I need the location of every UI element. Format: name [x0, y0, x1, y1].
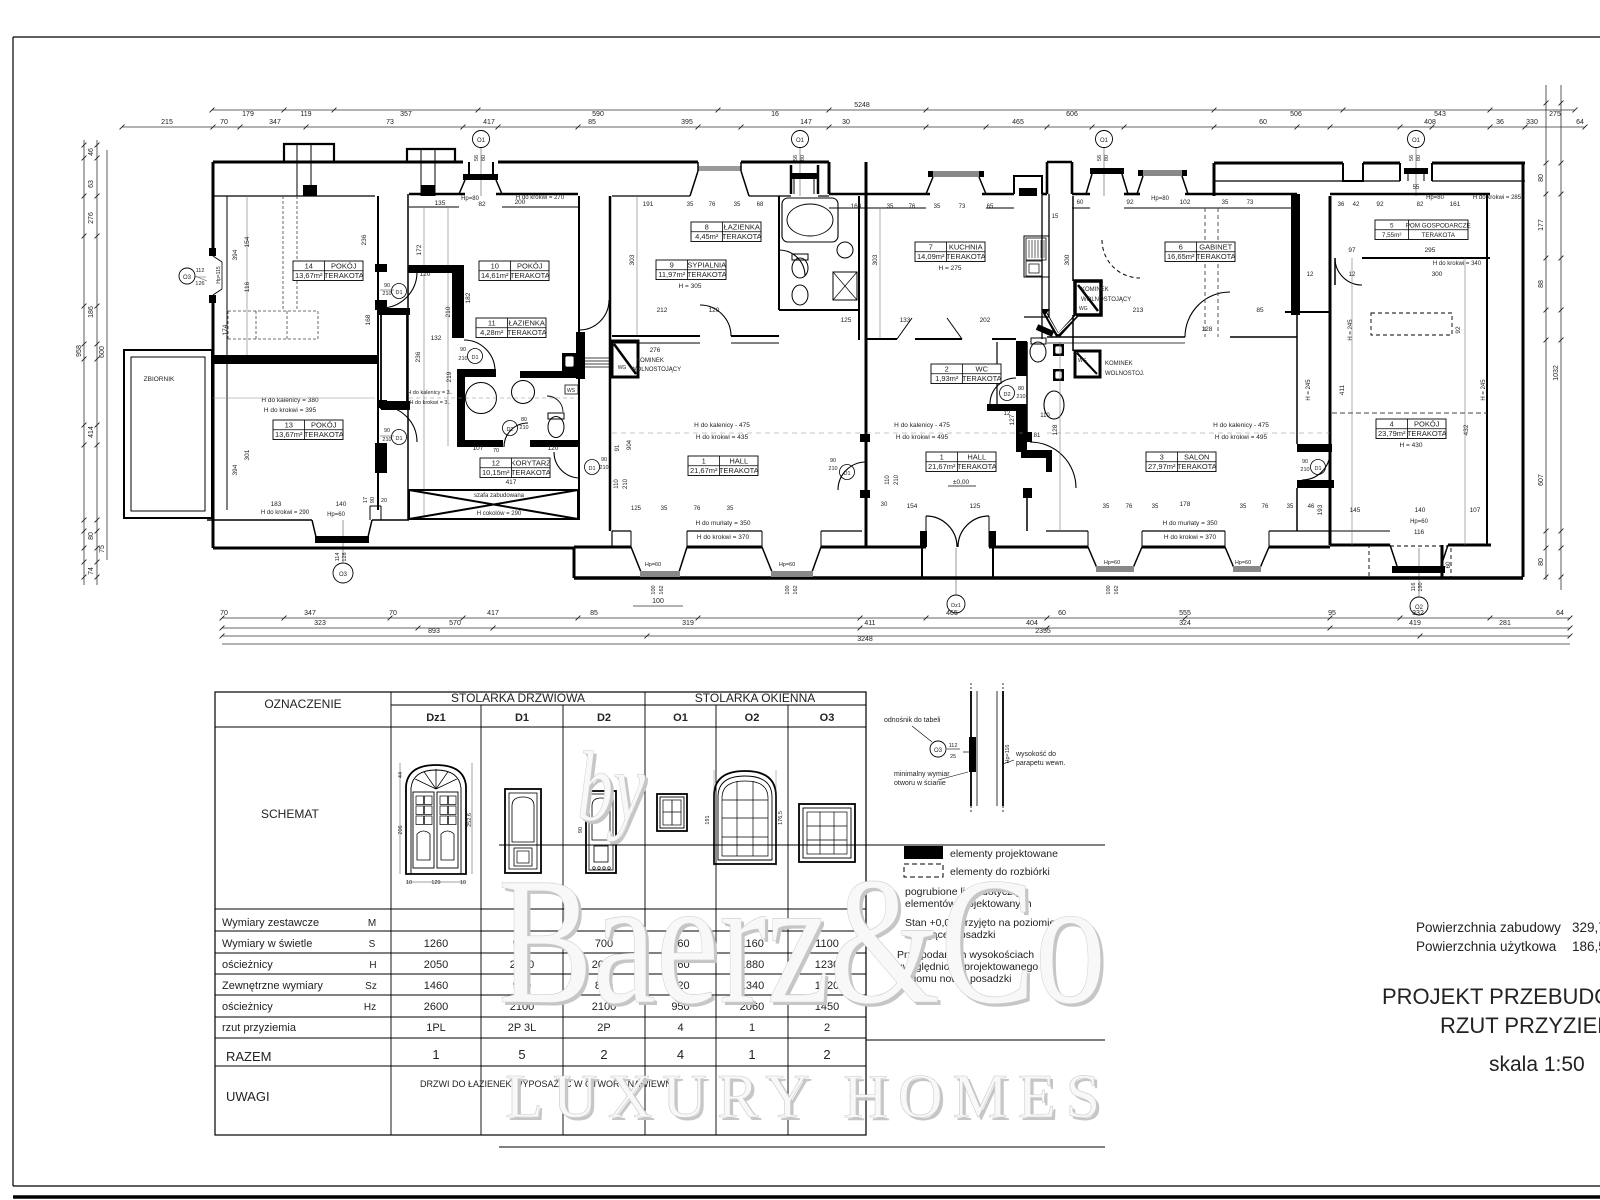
svg-text:75: 75: [99, 545, 106, 553]
svg-text:ZBIORNIK: ZBIORNIK: [144, 376, 175, 383]
svg-text:174: 174: [222, 324, 229, 335]
svg-text:126: 126: [195, 281, 204, 287]
svg-text:D2: D2: [597, 712, 611, 724]
svg-text:347: 347: [269, 119, 281, 126]
svg-text:12: 12: [1307, 272, 1314, 278]
svg-text:7,55m²: 7,55m²: [1382, 232, 1402, 239]
svg-text:5: 5: [518, 1047, 525, 1062]
svg-text:347: 347: [304, 610, 316, 617]
svg-text:WG: WG: [618, 365, 627, 371]
svg-text:Hp=80: Hp=80: [1151, 196, 1170, 202]
svg-text:154: 154: [907, 503, 918, 510]
svg-text:szafa zabudowana: szafa zabudowana: [474, 493, 525, 499]
svg-text:178: 178: [1180, 501, 1191, 508]
svg-text:TERAKOTA: TERAKOTA: [324, 271, 364, 280]
svg-text:WOLNOSTOJĄCY: WOLNOSTOJĄCY: [1081, 297, 1131, 303]
svg-text:100: 100: [652, 598, 664, 605]
svg-text:191: 191: [643, 201, 654, 208]
svg-text:183: 183: [271, 501, 282, 508]
svg-text:23,79m²: 23,79m²: [1378, 429, 1406, 438]
svg-text:ościeżnicy: ościeżnicy: [222, 959, 273, 971]
svg-text:112: 112: [949, 743, 958, 749]
svg-text:606: 606: [1066, 111, 1078, 118]
svg-text:2: 2: [600, 1047, 607, 1062]
svg-text:154: 154: [244, 236, 251, 247]
svg-text:97: 97: [1348, 247, 1356, 254]
svg-text:404: 404: [1026, 620, 1038, 627]
svg-text:21,67m²: 21,67m²: [928, 462, 956, 471]
svg-text:POM GOSPODARCZE: POM GOSPODARCZE: [1406, 222, 1471, 229]
svg-text:133: 133: [900, 317, 911, 324]
svg-text:H do krokwi = 3..: H do krokwi = 3..: [409, 400, 451, 406]
svg-text:2355: 2355: [1035, 628, 1051, 635]
svg-text:H do krokwi = 340: H do krokwi = 340: [1433, 261, 1482, 267]
svg-text:60: 60: [1259, 119, 1267, 126]
svg-text:6: 6: [1179, 242, 1183, 251]
svg-text:395: 395: [681, 119, 693, 126]
svg-text:465: 465: [1012, 119, 1024, 126]
svg-text:by: by: [577, 731, 645, 842]
svg-text:H = 245: H = 245: [1306, 379, 1312, 401]
svg-text:WG: WG: [1078, 358, 1087, 364]
svg-text:172: 172: [416, 244, 423, 255]
svg-text:330: 330: [1526, 119, 1538, 126]
svg-text:wysokość do: wysokość do: [1015, 751, 1056, 758]
svg-text:56: 56: [793, 155, 799, 161]
svg-text:20: 20: [381, 498, 387, 504]
svg-text:116: 116: [1411, 583, 1417, 592]
svg-text:73: 73: [386, 119, 394, 126]
svg-text:Sz: Sz: [365, 981, 377, 992]
svg-text:102: 102: [1180, 199, 1191, 206]
svg-text:590: 590: [592, 111, 604, 118]
svg-text:KOMINEK: KOMINEK: [1105, 361, 1133, 367]
svg-text:432: 432: [1463, 424, 1470, 435]
svg-text:60: 60: [1077, 200, 1084, 206]
svg-text:LUXURY HOMES: LUXURY HOMES: [505, 1063, 1110, 1131]
svg-text:1032: 1032: [1553, 365, 1560, 381]
svg-text:128: 128: [1052, 424, 1059, 435]
svg-text:TERAKOTA: TERAKOTA: [1196, 252, 1236, 261]
svg-text:417: 417: [506, 479, 517, 486]
svg-text:O3: O3: [934, 748, 943, 754]
svg-text:H = 275: H = 275: [939, 265, 962, 272]
svg-text:16,65m²: 16,65m²: [1167, 252, 1195, 261]
svg-text:UWAGI: UWAGI: [226, 1089, 270, 1104]
svg-text:35: 35: [1240, 504, 1247, 510]
svg-text:92: 92: [1126, 199, 1134, 206]
svg-text:190: 190: [1418, 582, 1424, 591]
svg-text:3248: 3248: [857, 636, 873, 643]
svg-text:D1: D1: [395, 436, 402, 442]
svg-text:S: S: [369, 939, 376, 950]
svg-text:8: 8: [705, 222, 709, 231]
svg-text:Zewnętrzne wymiary: Zewnętrzne wymiary: [222, 980, 323, 992]
svg-text:80: 80: [88, 532, 95, 540]
svg-text:210: 210: [1016, 394, 1025, 400]
svg-text:Hp=80: Hp=80: [461, 196, 480, 202]
svg-text:PROJEKT PRZEBUDOWY: PROJEKT PRZEBUDOWY: [1382, 984, 1600, 1009]
svg-text:WG: WG: [1079, 306, 1088, 312]
svg-text:KOMINEK: KOMINEK: [1081, 287, 1109, 293]
svg-text:35: 35: [887, 204, 894, 210]
svg-text:9: 9: [670, 260, 674, 269]
svg-text:301: 301: [244, 449, 251, 460]
svg-text:46: 46: [1308, 504, 1315, 510]
svg-text:324: 324: [1179, 620, 1191, 627]
svg-text:161: 161: [1450, 201, 1461, 208]
svg-text:Dz1: Dz1: [426, 712, 446, 724]
svg-text:210: 210: [828, 466, 837, 472]
svg-text:90: 90: [601, 457, 607, 463]
svg-text:13,67m²: 13,67m²: [275, 430, 303, 439]
svg-text:Hp=60: Hp=60: [327, 512, 346, 518]
svg-text:163: 163: [851, 203, 862, 210]
svg-text:68: 68: [757, 202, 764, 208]
svg-text:46: 46: [88, 148, 95, 156]
svg-text:TERAKOTA: TERAKOTA: [719, 466, 759, 475]
svg-text:O2: O2: [1415, 605, 1424, 611]
svg-text:70: 70: [220, 610, 228, 617]
svg-text:4,28m²: 4,28m²: [480, 328, 504, 337]
svg-text:OZNACZENIE: OZNACZENIE: [264, 697, 341, 711]
svg-text:SALON: SALON: [1184, 452, 1209, 461]
svg-text:H do krokwi = 290: H do krokwi = 290: [261, 510, 310, 516]
svg-text:POKÓJ: POKÓJ: [311, 420, 337, 429]
svg-text:100: 100: [651, 585, 657, 594]
svg-text:210: 210: [623, 478, 629, 489]
svg-text:44: 44: [398, 772, 404, 778]
svg-text:1: 1: [748, 1047, 755, 1062]
svg-text:TERAKOTA: TERAKOTA: [957, 462, 997, 471]
svg-text:Powierzchnia zabudowy: Powierzchnia zabudowy: [1416, 920, 1561, 935]
svg-text:H do kalenicy - 475: H do kalenicy - 475: [894, 422, 950, 429]
svg-text:177: 177: [1538, 219, 1545, 231]
svg-text:D1: D1: [471, 355, 478, 361]
svg-text:Hp=80: Hp=80: [1426, 195, 1445, 201]
svg-text:ŁAZIENKA: ŁAZIENKA: [724, 222, 760, 231]
svg-text:90: 90: [830, 458, 836, 464]
svg-text:Powierzchnia użytkowa: Powierzchnia użytkowa: [1416, 939, 1557, 954]
svg-text:H do krokwi = 435: H do krokwi = 435: [696, 434, 749, 441]
svg-text:H = 245: H = 245: [1481, 379, 1487, 401]
svg-text:63: 63: [88, 180, 95, 188]
svg-text:411: 411: [864, 620, 875, 627]
svg-text:56: 56: [474, 155, 480, 161]
svg-text:56: 56: [1409, 155, 1415, 161]
svg-text:82: 82: [1417, 202, 1424, 208]
svg-text:15: 15: [1052, 214, 1059, 220]
svg-text:56: 56: [1097, 155, 1103, 161]
svg-text:70: 70: [389, 610, 397, 617]
svg-text:17: 17: [363, 497, 369, 503]
svg-text:Dz1: Dz1: [951, 603, 961, 609]
svg-text:95: 95: [1328, 610, 1336, 617]
svg-text:90: 90: [1302, 459, 1308, 465]
svg-text:rzut przyziemia: rzut przyziemia: [222, 1022, 297, 1034]
svg-text:210: 210: [599, 465, 608, 471]
svg-text:TERAKOTA: TERAKOTA: [304, 430, 344, 439]
svg-text:275: 275: [1549, 111, 1561, 118]
svg-text:295: 295: [1425, 247, 1436, 254]
svg-text:394: 394: [232, 249, 239, 260]
svg-text:Hp=60: Hp=60: [1104, 560, 1120, 566]
svg-text:RZUT PRZYZIEMIA: RZUT PRZYZIEMIA: [1440, 1013, 1600, 1038]
svg-text:O2: O2: [745, 712, 760, 724]
svg-text:O1: O1: [796, 138, 805, 144]
svg-text:125: 125: [970, 503, 981, 510]
svg-text:H = 305: H = 305: [679, 283, 702, 290]
svg-text:417: 417: [483, 119, 495, 126]
svg-text:Hp=116: Hp=116: [1005, 744, 1011, 763]
svg-text:179: 179: [242, 111, 254, 118]
svg-text:TERAKOTA: TERAKOTA: [1421, 232, 1455, 239]
svg-text:ościeżnicy: ościeżnicy: [222, 1001, 273, 1013]
svg-text:323: 323: [314, 620, 326, 627]
svg-text:357: 357: [400, 111, 412, 118]
svg-text:13,67m²: 13,67m²: [295, 271, 323, 280]
svg-text:1: 1: [432, 1047, 439, 1062]
svg-text:WOLNOSTOJ.: WOLNOSTOJ.: [1105, 371, 1145, 377]
svg-text:76: 76: [909, 204, 916, 210]
svg-text:5248: 5248: [854, 102, 870, 109]
svg-text:3: 3: [1160, 452, 1164, 461]
svg-text:127: 127: [1009, 414, 1016, 425]
svg-text:73: 73: [1247, 200, 1254, 206]
svg-text:Wymiary w świetle: Wymiary w świetle: [222, 938, 312, 950]
svg-text:74: 74: [88, 567, 95, 575]
svg-text:543: 543: [1434, 111, 1446, 118]
svg-text:1PL: 1PL: [426, 1022, 446, 1034]
svg-text:893: 893: [428, 628, 440, 635]
svg-text:110: 110: [614, 479, 620, 489]
svg-text:Hp=60: Hp=60: [645, 562, 661, 568]
svg-text:162: 162: [659, 585, 665, 594]
svg-text:4: 4: [1390, 419, 1394, 428]
svg-text:120: 120: [548, 445, 559, 452]
svg-text:80: 80: [1538, 174, 1545, 182]
svg-text:Hp=60: Hp=60: [1410, 519, 1429, 525]
svg-text:417: 417: [487, 610, 499, 617]
svg-text:O3: O3: [339, 572, 348, 578]
svg-text:H = 245: H = 245: [1348, 319, 1354, 341]
svg-text:HALL: HALL: [729, 456, 748, 465]
svg-text:2: 2: [945, 364, 949, 373]
svg-text:O1: O1: [1100, 138, 1109, 144]
svg-text:193: 193: [1317, 504, 1324, 515]
svg-text:otworu w ścianie: otworu w ścianie: [894, 780, 946, 787]
svg-text:H do krokwi = 285: H do krokwi = 285: [1473, 195, 1522, 201]
svg-text:HALL: HALL: [967, 452, 986, 461]
svg-text:408: 408: [1424, 119, 1436, 126]
svg-text:H do kalenicy - 475: H do kalenicy - 475: [1213, 422, 1269, 429]
svg-text:35: 35: [934, 204, 941, 210]
svg-text:POKÓJ: POKÓJ: [331, 261, 357, 270]
svg-text:WOLNOSTOJĄCY: WOLNOSTOJĄCY: [631, 367, 681, 373]
svg-text:411: 411: [1339, 384, 1346, 395]
svg-text:H do murłaty = 350: H do murłaty = 350: [695, 520, 750, 527]
svg-text:186: 186: [88, 306, 95, 318]
svg-text:64: 64: [1556, 610, 1564, 617]
svg-text:2: 2: [823, 1047, 830, 1062]
svg-text:90: 90: [384, 283, 390, 289]
svg-text:80: 80: [800, 155, 806, 161]
svg-text:600: 600: [99, 346, 106, 358]
svg-text:GABINET: GABINET: [1199, 242, 1232, 251]
svg-text:35: 35: [1287, 504, 1294, 510]
svg-text:35: 35: [661, 506, 668, 512]
svg-text:O1: O1: [477, 138, 486, 144]
svg-text:76: 76: [694, 506, 701, 512]
svg-text:skala 1:50: skala 1:50: [1489, 1053, 1585, 1076]
svg-text:H do krokwi = 370: H do krokwi = 370: [697, 534, 750, 541]
svg-text:1: 1: [702, 456, 706, 465]
svg-text:H do kalenicy - 475: H do kalenicy - 475: [694, 422, 750, 429]
svg-text:112: 112: [196, 268, 205, 274]
svg-text:O1: O1: [1412, 138, 1421, 144]
svg-text:555: 555: [1179, 610, 1191, 617]
svg-text:162: 162: [793, 585, 799, 594]
svg-text:128: 128: [1202, 326, 1213, 333]
svg-text:D1: D1: [843, 471, 850, 477]
svg-text:904: 904: [627, 439, 633, 450]
svg-text:80: 80: [481, 155, 487, 161]
svg-text:132: 132: [431, 335, 442, 342]
svg-text:81: 81: [1034, 433, 1041, 439]
svg-text:TERAKOTA: TERAKOTA: [507, 328, 547, 337]
svg-text:90: 90: [370, 497, 376, 503]
svg-text:186,5: 186,5: [1572, 939, 1600, 954]
svg-text:116: 116: [244, 281, 251, 292]
svg-text:Hp=60: Hp=60: [1235, 560, 1251, 566]
svg-text:60: 60: [1058, 610, 1066, 617]
svg-text:100: 100: [1106, 585, 1112, 594]
svg-text:Hp=115: Hp=115: [216, 266, 222, 284]
svg-text:D1: D1: [588, 466, 595, 472]
svg-text:H do krokwi = 495: H do krokwi = 495: [896, 434, 949, 441]
svg-text:145: 145: [1350, 507, 1361, 514]
svg-text:64: 64: [1576, 119, 1584, 126]
svg-text:1260: 1260: [424, 938, 448, 950]
svg-text:107: 107: [473, 445, 484, 452]
svg-text:135: 135: [435, 200, 446, 207]
svg-text:35: 35: [687, 202, 694, 208]
svg-text:TERAKOTA: TERAKOTA: [946, 252, 986, 261]
svg-text:85: 85: [1256, 307, 1264, 314]
svg-text:KUCHNIA: KUCHNIA: [949, 242, 983, 251]
svg-text:POKÓJ: POKÓJ: [517, 261, 543, 270]
svg-text:176,5: 176,5: [778, 811, 784, 825]
svg-text:80: 80: [1104, 155, 1110, 161]
svg-text:125: 125: [631, 506, 642, 512]
svg-text:80: 80: [1416, 155, 1422, 161]
svg-text:191: 191: [705, 815, 711, 824]
svg-text:D2: D2: [506, 427, 513, 433]
svg-text:85: 85: [590, 610, 598, 617]
svg-text:210: 210: [382, 291, 391, 297]
svg-text:D2: D2: [1003, 392, 1010, 398]
svg-text:65: 65: [987, 204, 994, 210]
svg-text:506: 506: [1290, 111, 1302, 118]
svg-text:219: 219: [446, 371, 453, 382]
svg-text:110: 110: [1040, 413, 1050, 419]
svg-text:H do krokwi = 395: H do krokwi = 395: [264, 407, 317, 414]
svg-text:303: 303: [629, 254, 636, 265]
svg-text:70: 70: [220, 119, 228, 126]
svg-text:10,15m²: 10,15m²: [482, 468, 510, 477]
svg-text:329,7: 329,7: [1572, 920, 1600, 935]
svg-text:30: 30: [881, 502, 888, 508]
svg-text:125: 125: [841, 317, 852, 324]
svg-text:276: 276: [650, 347, 661, 354]
svg-text:14,61m²: 14,61m²: [481, 271, 509, 280]
svg-text:TERAKOTA: TERAKOTA: [511, 468, 551, 477]
svg-text:465: 465: [946, 610, 958, 617]
svg-text:129: 129: [431, 880, 440, 886]
svg-text:206: 206: [398, 825, 404, 834]
svg-text:36: 36: [1338, 202, 1345, 208]
svg-text:210: 210: [519, 425, 528, 431]
svg-text:80: 80: [1538, 558, 1545, 566]
svg-text:210: 210: [445, 306, 452, 317]
svg-text:147: 147: [800, 119, 812, 126]
svg-text:H: H: [369, 960, 376, 971]
svg-text:TERAKOTA: TERAKOTA: [722, 232, 762, 241]
svg-text:1: 1: [940, 452, 944, 461]
svg-text:11: 11: [488, 318, 496, 327]
svg-text:1460: 1460: [424, 980, 448, 992]
svg-text:607: 607: [1538, 474, 1545, 486]
svg-text:Baerz&Co: Baerz&Co: [498, 841, 1106, 1042]
svg-text:92: 92: [1455, 326, 1462, 334]
svg-text:236: 236: [415, 351, 422, 362]
svg-text:Wymiary zestawcze: Wymiary zestawcze: [222, 917, 319, 929]
svg-text:7: 7: [929, 242, 933, 251]
svg-text:140: 140: [1415, 507, 1426, 514]
svg-text:76: 76: [1262, 504, 1269, 510]
svg-text:215: 215: [161, 119, 173, 126]
svg-text:2600: 2600: [424, 1001, 448, 1013]
svg-text:236: 236: [361, 234, 368, 245]
svg-text:210: 210: [458, 356, 467, 362]
svg-text:110: 110: [885, 475, 891, 485]
svg-text:WC: WC: [976, 364, 989, 373]
svg-text:Hp=60: Hp=60: [779, 562, 795, 568]
svg-text:4,45m²: 4,45m²: [695, 232, 719, 241]
svg-text:±0,00: ±0,00: [953, 479, 970, 486]
svg-text:570: 570: [449, 620, 461, 627]
svg-text:21,67m²: 21,67m²: [690, 466, 718, 475]
svg-text:O3: O3: [183, 275, 192, 281]
svg-text:STOLARKA OKIENNA: STOLARKA OKIENNA: [695, 691, 816, 705]
svg-text:70: 70: [493, 448, 499, 454]
svg-text:H do murłaty = 350: H do murłaty = 350: [1162, 520, 1217, 527]
svg-text:2050: 2050: [424, 959, 448, 971]
svg-text:35: 35: [734, 202, 741, 208]
svg-text:parapetu wewn.: parapetu wewn.: [1016, 760, 1065, 767]
svg-text:KORYTARZ: KORYTARZ: [511, 458, 552, 467]
svg-text:odnośnik do tabeli: odnośnik do tabeli: [884, 717, 941, 724]
svg-text:419: 419: [1409, 620, 1421, 627]
svg-text:100: 100: [785, 585, 791, 594]
svg-text:H do krokwi = 270: H do krokwi = 270: [516, 195, 565, 201]
svg-text:276: 276: [88, 212, 95, 224]
svg-text:M: M: [368, 918, 376, 929]
svg-text:TERAKOTA: TERAKOTA: [1407, 429, 1447, 438]
svg-text:35: 35: [1222, 200, 1229, 206]
svg-text:25: 25: [950, 754, 956, 760]
svg-text:90: 90: [384, 428, 390, 434]
